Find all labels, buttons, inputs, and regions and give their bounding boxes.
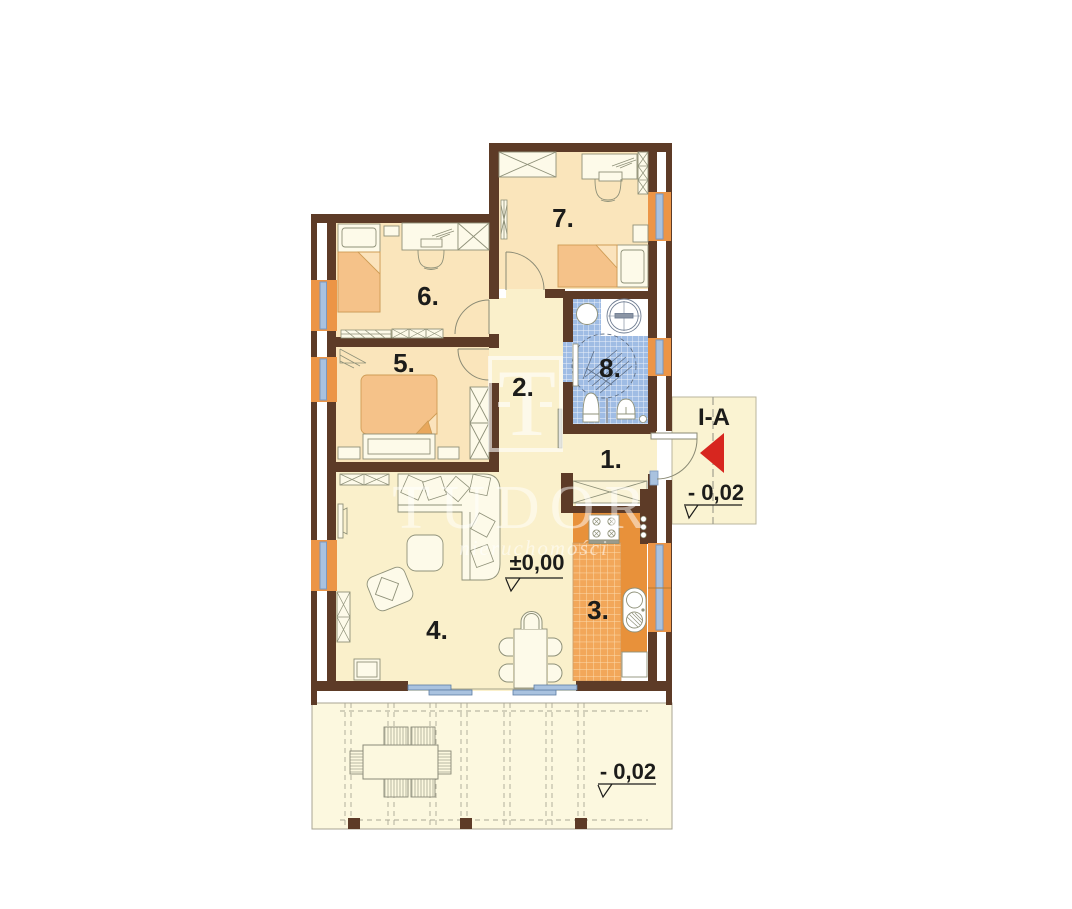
svg-text:- 0,02: - 0,02 — [600, 759, 656, 784]
svg-text:I-A: I-A — [698, 404, 730, 431]
svg-text:4.: 4. — [426, 615, 448, 645]
svg-text:8.: 8. — [599, 353, 621, 383]
svg-text:6.: 6. — [417, 281, 439, 311]
svg-text:3.: 3. — [587, 595, 609, 625]
svg-text:7.: 7. — [552, 203, 574, 233]
svg-text:±0,00: ±0,00 — [510, 550, 565, 575]
svg-text:1.: 1. — [600, 444, 622, 474]
svg-text:TUDOR: TUDOR — [392, 474, 656, 542]
svg-text:- 0,02: - 0,02 — [688, 480, 744, 505]
svg-text:5.: 5. — [393, 348, 415, 378]
svg-text:2.: 2. — [512, 372, 534, 402]
